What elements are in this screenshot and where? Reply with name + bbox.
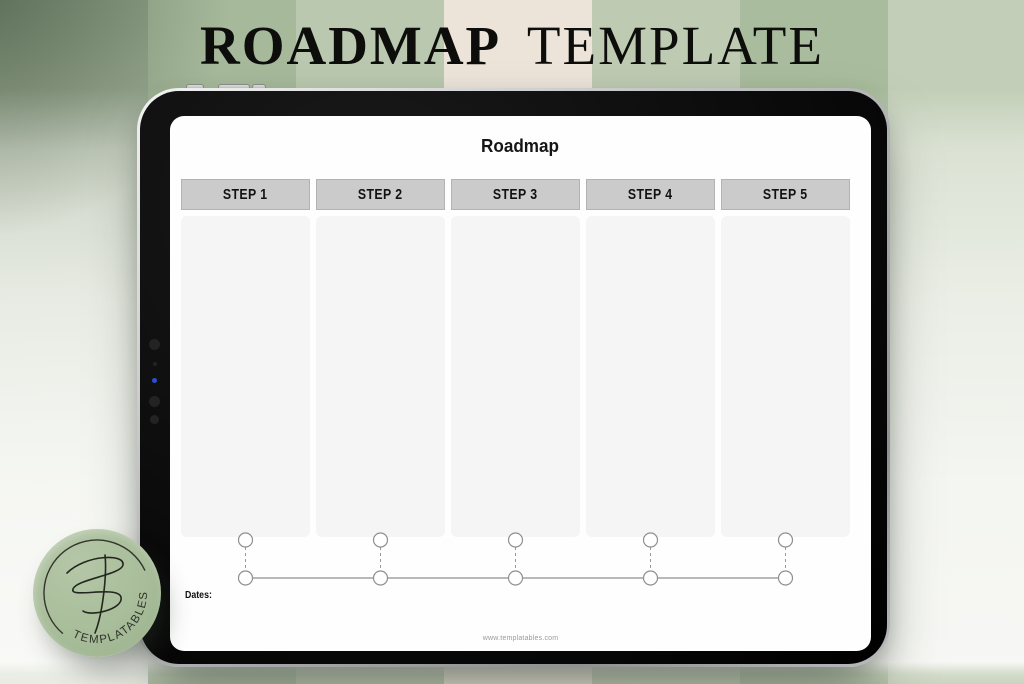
step-header-label: STEP 3 <box>493 186 538 203</box>
step-column-1[interactable] <box>181 216 310 537</box>
step-header-label: STEP 4 <box>628 186 673 203</box>
step-header-label: STEP 1 <box>223 186 268 203</box>
camera-lens-dot <box>149 396 160 407</box>
step-header-4: STEP 4 <box>586 179 715 210</box>
tablet-screen: Roadmap STEP 1 STEP 2 STEP 3 STEP 4 STEP… <box>170 116 871 651</box>
timeline-node <box>644 533 658 547</box>
step-header-label: STEP 5 <box>763 186 808 203</box>
step-header-2: STEP 2 <box>316 179 445 210</box>
timeline-node <box>509 533 523 547</box>
timeline-node <box>374 533 388 547</box>
timeline-node <box>779 533 793 547</box>
timeline-node <box>644 571 658 585</box>
dates-label: Dates: <box>185 590 212 601</box>
step-header-1: STEP 1 <box>181 179 310 210</box>
timeline-node <box>239 533 253 547</box>
tf-monogram-icon <box>67 555 123 633</box>
brand-badge: TEMPLATABLES <box>33 529 161 657</box>
step-header-label: STEP 2 <box>358 186 403 203</box>
camera-lens-dot <box>150 415 159 424</box>
step-column-5[interactable] <box>721 216 850 537</box>
timeline-node <box>374 571 388 585</box>
step-column-4[interactable] <box>586 216 715 537</box>
badge-brand-text: TEMPLATABLES <box>71 590 150 646</box>
camera-sensor-dot <box>153 362 157 366</box>
timeline-node <box>779 571 793 585</box>
step-header-5: STEP 5 <box>721 179 850 210</box>
timeline-connectors <box>246 547 786 571</box>
timeline <box>170 526 871 596</box>
camera-indicator-dot <box>152 378 157 383</box>
step-column-2[interactable] <box>316 216 445 537</box>
page-title: ROADMAP TEMPLATE <box>0 14 1024 77</box>
step-header-3: STEP 3 <box>451 179 580 210</box>
sheet-title: Roadmap <box>170 136 871 157</box>
sheet-title-text: Roadmap <box>482 136 560 157</box>
tablet-frame: Roadmap STEP 1 STEP 2 STEP 3 STEP 4 STEP… <box>137 88 890 667</box>
brand-badge-art: TEMPLATABLES <box>33 529 161 657</box>
page-title-secondary: TEMPLATE <box>527 15 824 76</box>
front-camera-icon <box>149 339 160 350</box>
page-title-primary: ROADMAP <box>200 15 501 76</box>
tablet-bezel: Roadmap STEP 1 STEP 2 STEP 3 STEP 4 STEP… <box>140 91 887 664</box>
step-column-3[interactable] <box>451 216 580 537</box>
timeline-node <box>509 571 523 585</box>
footer-url: www.templatables.com <box>170 635 871 642</box>
timeline-node <box>239 571 253 585</box>
